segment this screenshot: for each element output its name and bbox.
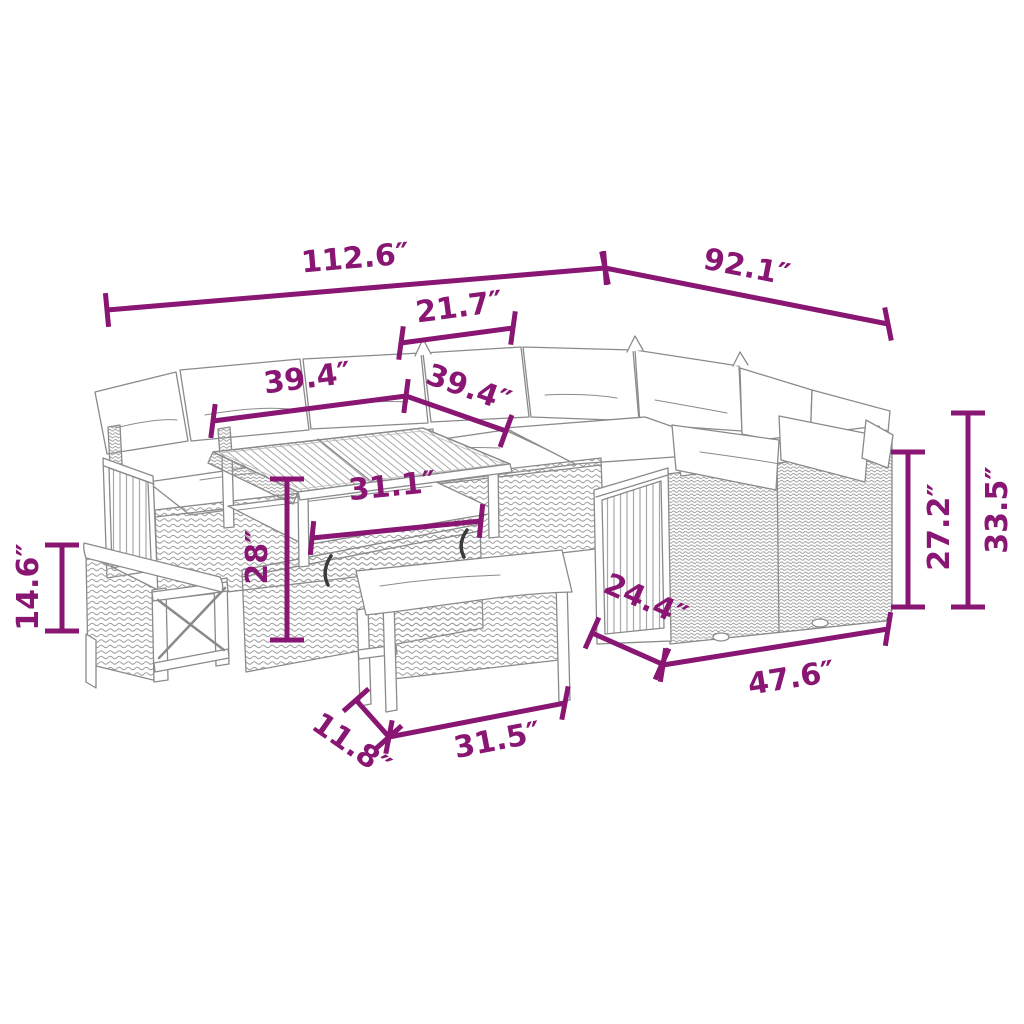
dim-sofa-back-height: 27.2″ (891, 452, 957, 607)
dim-label: 11.8″ (305, 706, 397, 785)
dim-label: 47.6″ (745, 654, 837, 702)
center-bench (356, 550, 572, 712)
dim-bench-height: 14.6″ (11, 543, 79, 631)
table-leg-front-right (488, 465, 499, 538)
dim-line (45, 545, 79, 631)
left-bench-front-leg (86, 634, 96, 688)
back-pillow (523, 347, 639, 421)
dim-label: 28″ (240, 529, 275, 584)
dim-label: 27.2″ (922, 483, 957, 570)
dim-label: 21.7″ (414, 284, 505, 330)
table-leg-front (298, 492, 309, 567)
dim-overall-depth: 92.1″ (602, 242, 892, 341)
dim-label: 14.6″ (11, 543, 46, 630)
rattan-corner-post (108, 425, 122, 466)
dim-line (891, 452, 925, 607)
sofa-foot (812, 619, 828, 627)
dim-label: 33.5″ (980, 466, 1015, 553)
dim-bench-length: 31.5″ (386, 686, 568, 766)
center-bench-leg-front-right (556, 579, 570, 702)
dim-label: 112.6″ (300, 237, 411, 281)
sofa-foot (713, 633, 729, 641)
furniture-dimension-diagram: 112.6″ 92.1″ 21.7″ 39.4″ 39.4″ 31.1″ 28″ (0, 0, 1024, 1024)
diagram-canvas: 112.6″ 92.1″ 21.7″ 39.4″ 39.4″ 31.1″ 28″ (0, 0, 1024, 1024)
dim-sofa-total-height: 33.5″ (951, 413, 1015, 607)
dim-overall-width: 112.6″ (105, 237, 606, 327)
dim-label: 92.1″ (700, 242, 793, 293)
center-bench-leg-front-left (383, 600, 397, 712)
